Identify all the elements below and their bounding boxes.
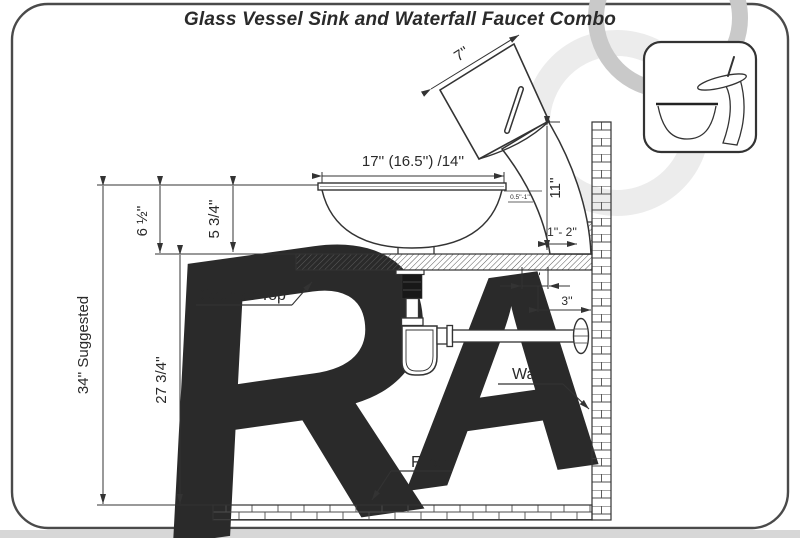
dim-11-label: 11'': [547, 177, 564, 198]
dim-17-label: 17'' (16.5'') /14'': [362, 153, 464, 170]
dim-3-label: 3'': [561, 294, 572, 308]
dim-534-label: 5 3/4'': [206, 199, 223, 238]
floor-label: Floor: [411, 454, 448, 471]
drain-flange: [396, 270, 424, 275]
wall-label: Wall: [512, 366, 543, 383]
diagram-canvas: R A Glass Vessel Sink and Waterfall Fauc…: [0, 0, 800, 538]
waste-pipe: [453, 330, 575, 342]
trap-outlet-stub: [437, 328, 447, 344]
p-trap-body: [402, 326, 437, 375]
wall-section: [592, 122, 611, 520]
trap-joint-ring: [447, 326, 453, 347]
dim-6half-label: 6 ½'': [134, 205, 151, 236]
floor-section: [213, 505, 592, 520]
dim-1to2-label: 1''- 2'': [547, 225, 577, 239]
dim-2734-label: 27 3/4'': [153, 356, 170, 404]
dim-2-label: 2'': [529, 270, 540, 284]
drain-threaded-pipe: [402, 275, 422, 299]
diagram-page: R A Glass Vessel Sink and Waterfall Fauc…: [0, 0, 800, 538]
counter-top-label: Counter Top: [199, 287, 286, 304]
dim-34-label: 34'' Suggested: [75, 296, 92, 394]
inset-thumbnail: [644, 42, 756, 152]
drain-tailpiece: [406, 299, 419, 319]
drain-slip-nut: [402, 318, 424, 326]
dim-rimgap-label: 0.5''-1'': [510, 194, 530, 201]
page-title: Glass Vessel Sink and Waterfall Faucet C…: [184, 9, 616, 30]
